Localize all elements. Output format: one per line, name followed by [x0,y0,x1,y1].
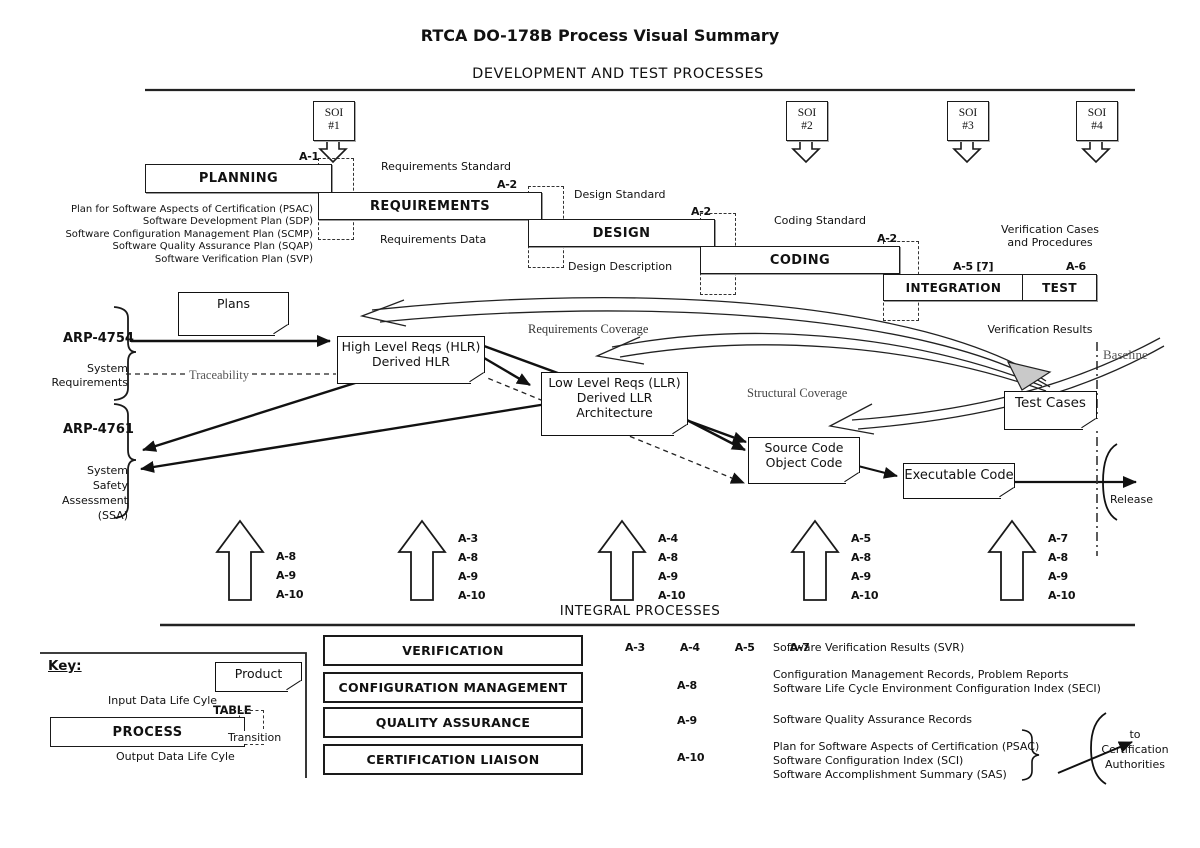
label-cert-authorities: to Certification Authorities [1095,727,1175,772]
integral-row-certification-liaison: CERTIFICATION LIAISON [323,744,583,775]
process-box-integration: INTEGRATION [883,274,1024,301]
up-arrow-tags-3: A-4 A-8 A-9 A-10 [658,529,685,605]
outputs-quality: Software Quality Assurance Records [773,713,972,727]
soi-3-box: SOI#3 [947,101,989,141]
doc-high-level-reqs: High Level Reqs (HLR) Derived HLR [337,336,485,384]
process-box-requirements: REQUIREMENTS [318,192,542,220]
integral-tags-configuration: A-8 [677,679,697,692]
doc-plans: Plans [178,292,289,336]
key-output-label: Output Data Life Cyle [116,750,235,763]
label-requirements-data: Requirements Data [380,233,486,246]
label-baseline: Baseline [1103,347,1148,363]
label-verification-cases: Verification Cases and Procedures [985,223,1115,249]
process-box-coding: CODING [700,246,900,274]
list-item: Software Quality Assurance Plan (SQAP) [40,241,313,253]
key-title: Key: [48,658,82,674]
label-ssa: System Safety Assessment (SSA) [40,463,128,523]
doc-test-cases: Test Cases [1004,391,1097,430]
key-transition-label: Transition [228,731,281,744]
up-arrow-tags-1: A-8 A-9 A-10 [276,547,303,604]
tag-coding: A-2 [877,232,897,245]
process-box-planning: PLANNING [145,164,332,193]
label-design-standard: Design Standard [574,188,666,201]
label-design-description: Design Description [568,260,672,273]
list-item: Plan for Software Aspects of Certificati… [40,204,313,216]
key-input-label: Input Data Life Cyle [108,694,217,707]
up-arrow-tags-5: A-7 A-8 A-9 A-10 [1048,529,1075,605]
process-box-test: TEST [1022,274,1097,301]
integral-section-heading: INTEGRAL PROCESSES [500,603,780,619]
label-arp4761: ARP-4761 [63,422,134,437]
tag-integration: A-5 [7] [953,260,993,273]
integral-tags-certification: A-10 [677,751,704,764]
label-arp4754: ARP-4754 [63,331,134,346]
soi-1-box: SOI#1 [313,101,355,141]
soi-4-box: SOI#4 [1076,101,1118,141]
soi-down-arrow-icons [320,140,1109,162]
integral-row-quality-assurance: QUALITY ASSURANCE [323,707,583,738]
label-requirements-standard: Requirements Standard [381,160,511,173]
page-title: RTCA DO-178B Process Visual Summary [300,26,900,45]
tag-test: A-6 [1066,260,1086,273]
integral-up-arrow-icons [217,521,1035,600]
up-arrow-tags-4: A-5 A-8 A-9 A-10 [851,529,878,605]
list-item: Software Configuration Management Plan (… [40,229,313,241]
integral-tags-quality: A-9 [677,714,697,727]
integral-row-configuration-management: CONFIGURATION MANAGEMENT [323,672,583,703]
planning-outputs-list: Plan for Software Aspects of Certificati… [40,204,313,266]
doc-executable-code: Executable Code [903,463,1015,499]
key-process-box: PROCESS [50,717,245,747]
outputs-verification: Software Verification Results (SVR) [773,641,964,655]
key-product-doc: Product [215,662,302,692]
integral-row-verification: VERIFICATION [323,635,583,666]
outputs-configuration: Configuration Management Records, Proble… [773,668,1101,696]
label-system-requirements: System Requirements [40,362,128,390]
arrow-llr-to-ssa [141,399,578,469]
up-arrow-tags-2: A-3 A-8 A-9 A-10 [458,529,485,605]
tag-requirements: A-2 [497,178,517,191]
list-item: Software Development Plan (SDP) [40,216,313,228]
label-traceability: Traceability [186,368,252,383]
tag-planning: A-1 [299,150,319,163]
arrow-source-to-executable [858,466,897,476]
process-box-design: DESIGN [528,219,715,247]
soi-2-box: SOI#2 [786,101,828,141]
label-verification-results: Verification Results [960,323,1120,336]
label-release: Release [1110,493,1153,506]
doc-source-code: Source Code Object Code [748,437,860,484]
tag-design: A-2 [691,205,711,218]
doc-low-level-reqs: Low Level Reqs (LLR) Derived LLR Archite… [541,372,688,436]
label-requirements-coverage: Requirements Coverage [528,322,648,337]
dev-section-heading: DEVELOPMENT AND TEST PROCESSES [400,66,836,82]
label-structural-coverage: Structural Coverage [747,386,847,401]
label-coding-standard: Coding Standard [774,214,866,227]
do178b-diagram: RTCA DO-178B Process Visual Summary DEVE… [0,0,1200,848]
outputs-certification: Plan for Software Aspects of Certificati… [773,740,1039,781]
list-item: Software Verification Plan (SVP) [40,254,313,266]
